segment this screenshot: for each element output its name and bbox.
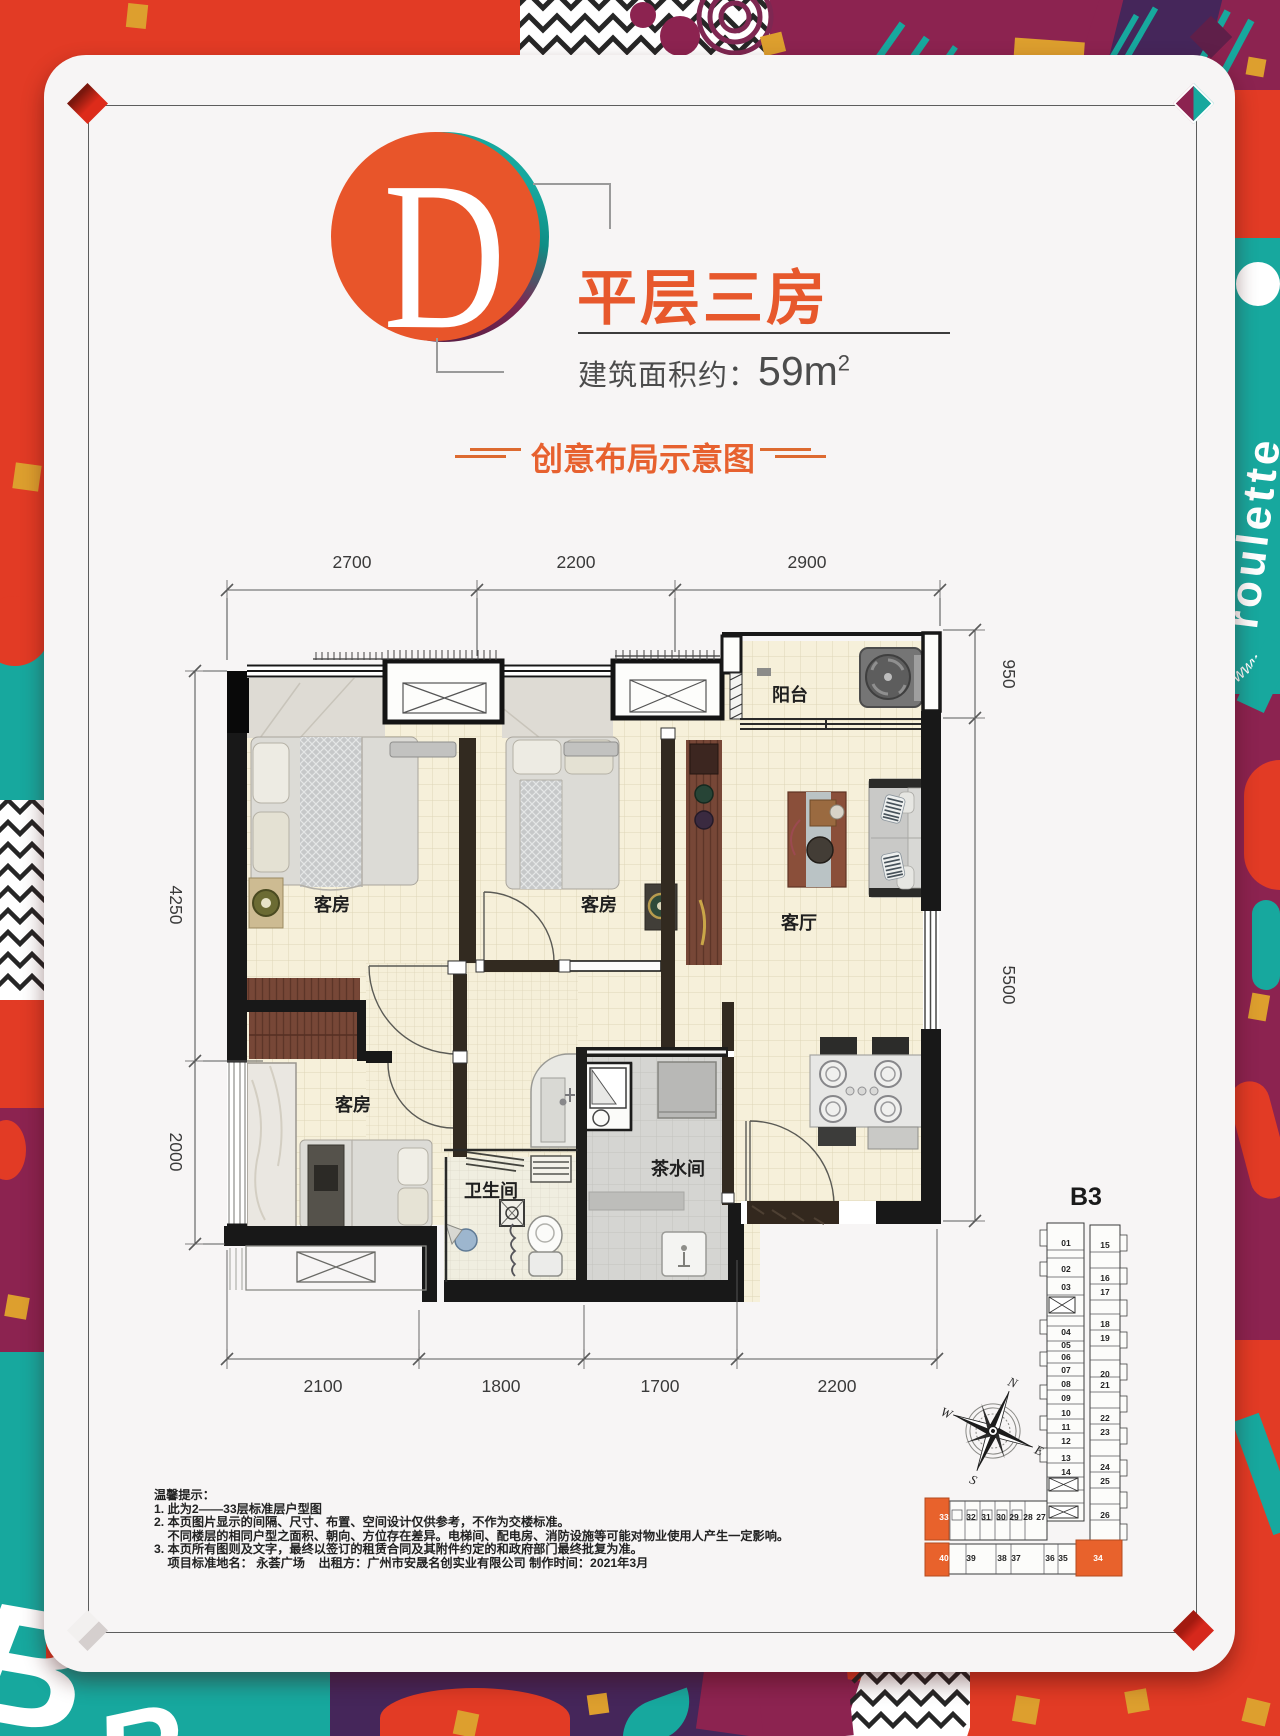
svg-text:4250: 4250 xyxy=(166,886,186,925)
svg-text:27: 27 xyxy=(1036,1512,1046,1522)
svg-text:28: 28 xyxy=(1023,1512,1033,1522)
svg-text:35: 35 xyxy=(1058,1553,1068,1563)
svg-text:客房: 客房 xyxy=(335,1094,371,1115)
svg-text:2200: 2200 xyxy=(557,552,596,572)
svg-text:14: 14 xyxy=(1061,1467,1071,1477)
svg-text:02: 02 xyxy=(1061,1264,1071,1274)
svg-text:09: 09 xyxy=(1061,1393,1071,1403)
svg-text:17: 17 xyxy=(1100,1287,1110,1297)
svg-text:32: 32 xyxy=(966,1512,976,1522)
svg-text:11: 11 xyxy=(1062,1422,1071,1432)
svg-text:20: 20 xyxy=(1100,1369,1110,1379)
svg-text:2000: 2000 xyxy=(166,1133,186,1172)
svg-text:30: 30 xyxy=(996,1512,1006,1522)
svg-text:客房: 客房 xyxy=(581,894,617,915)
svg-text:24: 24 xyxy=(1100,1462,1110,1472)
svg-text:34: 34 xyxy=(1093,1553,1103,1563)
svg-text:10: 10 xyxy=(1061,1408,1071,1418)
svg-text:31: 31 xyxy=(981,1512,991,1522)
svg-text:16: 16 xyxy=(1100,1273,1110,1283)
svg-text:36: 36 xyxy=(1045,1553,1055,1563)
svg-text:阳台: 阳台 xyxy=(772,684,808,705)
svg-text:01: 01 xyxy=(1061,1238,1071,1248)
svg-text:33: 33 xyxy=(939,1512,949,1522)
svg-text:客房: 客房 xyxy=(314,894,350,915)
svg-text:06: 06 xyxy=(1061,1352,1071,1362)
svg-text:S: S xyxy=(968,1472,980,1489)
svg-text:950: 950 xyxy=(999,659,1019,688)
svg-text:07: 07 xyxy=(1061,1365,1071,1375)
svg-text:25: 25 xyxy=(1100,1476,1110,1486)
svg-text:1700: 1700 xyxy=(641,1376,680,1396)
svg-text:15: 15 xyxy=(1100,1240,1110,1250)
svg-text:40: 40 xyxy=(939,1553,949,1563)
svg-text:12: 12 xyxy=(1061,1436,1071,1446)
svg-text:39: 39 xyxy=(966,1553,976,1563)
svg-text:N: N xyxy=(1005,1373,1021,1391)
svg-text:2900: 2900 xyxy=(788,552,827,572)
svg-text:13: 13 xyxy=(1061,1453,1071,1463)
svg-text:37: 37 xyxy=(1011,1553,1021,1563)
svg-text:1800: 1800 xyxy=(482,1376,521,1396)
svg-text:2700: 2700 xyxy=(333,552,372,572)
svg-text:22: 22 xyxy=(1100,1413,1110,1423)
svg-text:5500: 5500 xyxy=(999,966,1019,1005)
svg-text:18: 18 xyxy=(1100,1319,1110,1329)
svg-text:03: 03 xyxy=(1061,1282,1071,1292)
svg-text:29: 29 xyxy=(1009,1512,1019,1522)
svg-text:茶水间: 茶水间 xyxy=(651,1158,705,1179)
svg-text:21: 21 xyxy=(1100,1380,1110,1390)
svg-text:26: 26 xyxy=(1100,1510,1110,1520)
svg-text:2200: 2200 xyxy=(818,1376,857,1396)
svg-text:2100: 2100 xyxy=(304,1376,343,1396)
svg-text:W: W xyxy=(939,1404,956,1422)
svg-text:客厅: 客厅 xyxy=(781,912,817,933)
svg-text:23: 23 xyxy=(1100,1427,1110,1437)
svg-text:B3: B3 xyxy=(1070,1183,1102,1211)
svg-text:04: 04 xyxy=(1061,1327,1071,1337)
svg-text:08: 08 xyxy=(1061,1379,1071,1389)
svg-text:05: 05 xyxy=(1061,1340,1071,1350)
svg-text:19: 19 xyxy=(1100,1333,1110,1343)
svg-text:38: 38 xyxy=(997,1553,1007,1563)
svg-text:卫生间: 卫生间 xyxy=(464,1180,518,1201)
